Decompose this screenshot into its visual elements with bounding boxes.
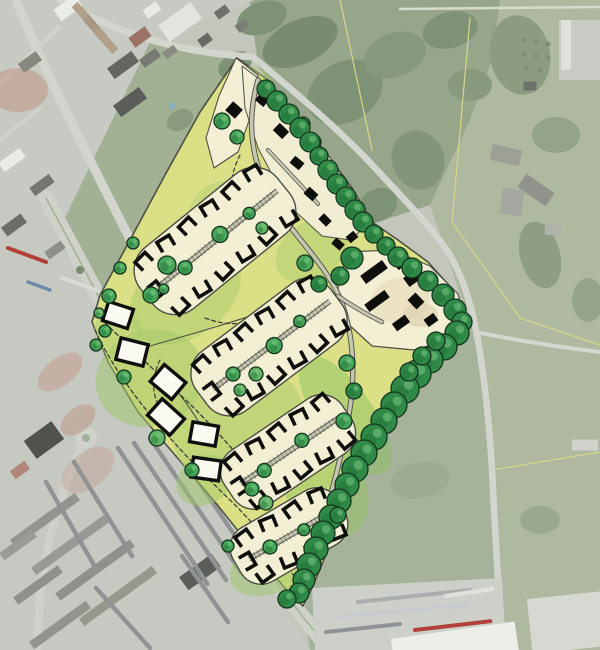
tree-icon	[331, 267, 349, 285]
terrain-patch	[532, 117, 580, 153]
building	[524, 82, 537, 91]
map-dot	[538, 68, 543, 73]
tree-icon	[230, 130, 244, 144]
tree-icon	[346, 383, 362, 399]
tree-icon	[341, 247, 363, 269]
tree-icon	[339, 355, 355, 371]
map-dot	[522, 38, 527, 43]
map-dot	[522, 52, 527, 57]
terrain-patch	[520, 506, 560, 534]
tree-icon	[259, 496, 273, 510]
building	[545, 225, 561, 235]
tree-icon	[149, 430, 165, 446]
aerial-site-plan-map	[0, 0, 600, 650]
tree-icon	[400, 363, 418, 381]
tree-icon	[278, 590, 296, 608]
tree-icon	[127, 237, 139, 249]
tree-icon	[117, 370, 131, 384]
tree-icon	[222, 540, 234, 552]
map-dot	[169, 103, 175, 109]
map-dot	[546, 56, 551, 61]
building	[499, 188, 524, 217]
tree-icon	[297, 255, 313, 271]
tree-icon	[256, 222, 268, 234]
map-dot	[534, 40, 539, 45]
tree-icon	[94, 308, 104, 318]
tree-icon	[245, 482, 259, 496]
map-dot	[82, 434, 90, 442]
tree-icon	[102, 289, 116, 303]
tree-icon	[185, 463, 199, 477]
site-plan-canvas	[0, 0, 600, 650]
tree-icon	[413, 347, 431, 365]
pavilion	[116, 338, 148, 366]
tree-icon	[427, 332, 445, 350]
pavilion	[189, 422, 218, 446]
tree-icon	[99, 325, 111, 337]
tree-icon	[402, 258, 422, 278]
tree-icon	[158, 256, 176, 274]
building	[527, 590, 600, 650]
tree-icon	[90, 339, 102, 351]
map-dot	[546, 42, 551, 47]
tree-icon	[114, 262, 126, 274]
map-dot	[76, 266, 84, 274]
tree-icon	[143, 287, 159, 303]
map-dot	[534, 54, 539, 59]
building	[561, 20, 571, 70]
tree-icon	[311, 276, 327, 292]
terrain-patch	[448, 69, 492, 101]
tree-icon	[214, 113, 230, 129]
map-dot	[524, 66, 529, 71]
building	[572, 440, 598, 451]
tree-icon	[249, 367, 263, 381]
tree-icon	[330, 507, 346, 523]
tree-icon	[336, 413, 352, 429]
tree-icon	[234, 384, 246, 396]
